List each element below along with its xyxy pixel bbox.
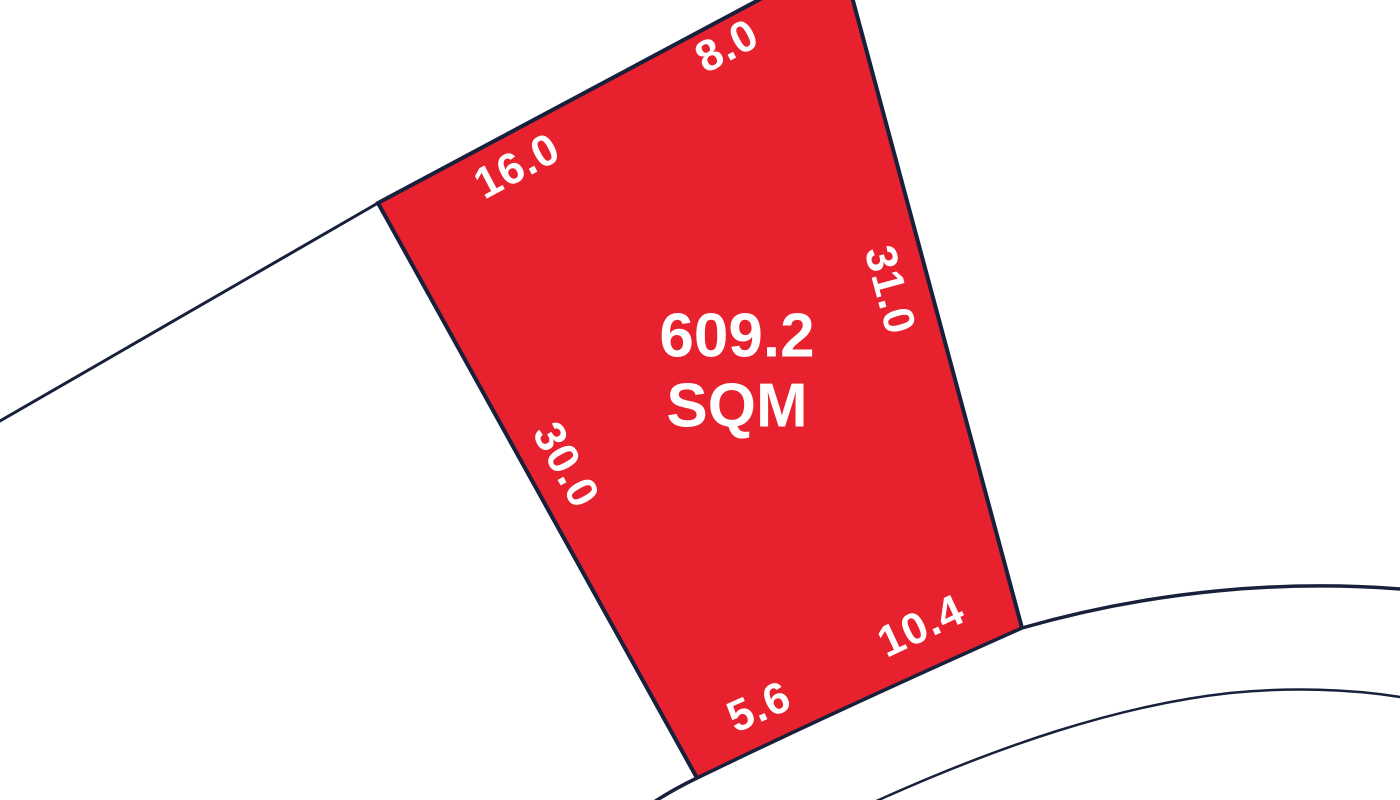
boundary-extension-line xyxy=(0,203,378,421)
lot-plan-drawing: 16.0 8.0 31.0 30.0 5.6 10.4 609.2 SQM xyxy=(0,0,1400,800)
lot-area-value: 609.2 xyxy=(659,302,814,371)
lot-area-unit: SQM xyxy=(666,372,807,441)
lot-plan-canvas: 16.0 8.0 31.0 30.0 5.6 10.4 609.2 SQM xyxy=(0,0,1400,800)
road-lower-edge-line xyxy=(872,690,1400,800)
